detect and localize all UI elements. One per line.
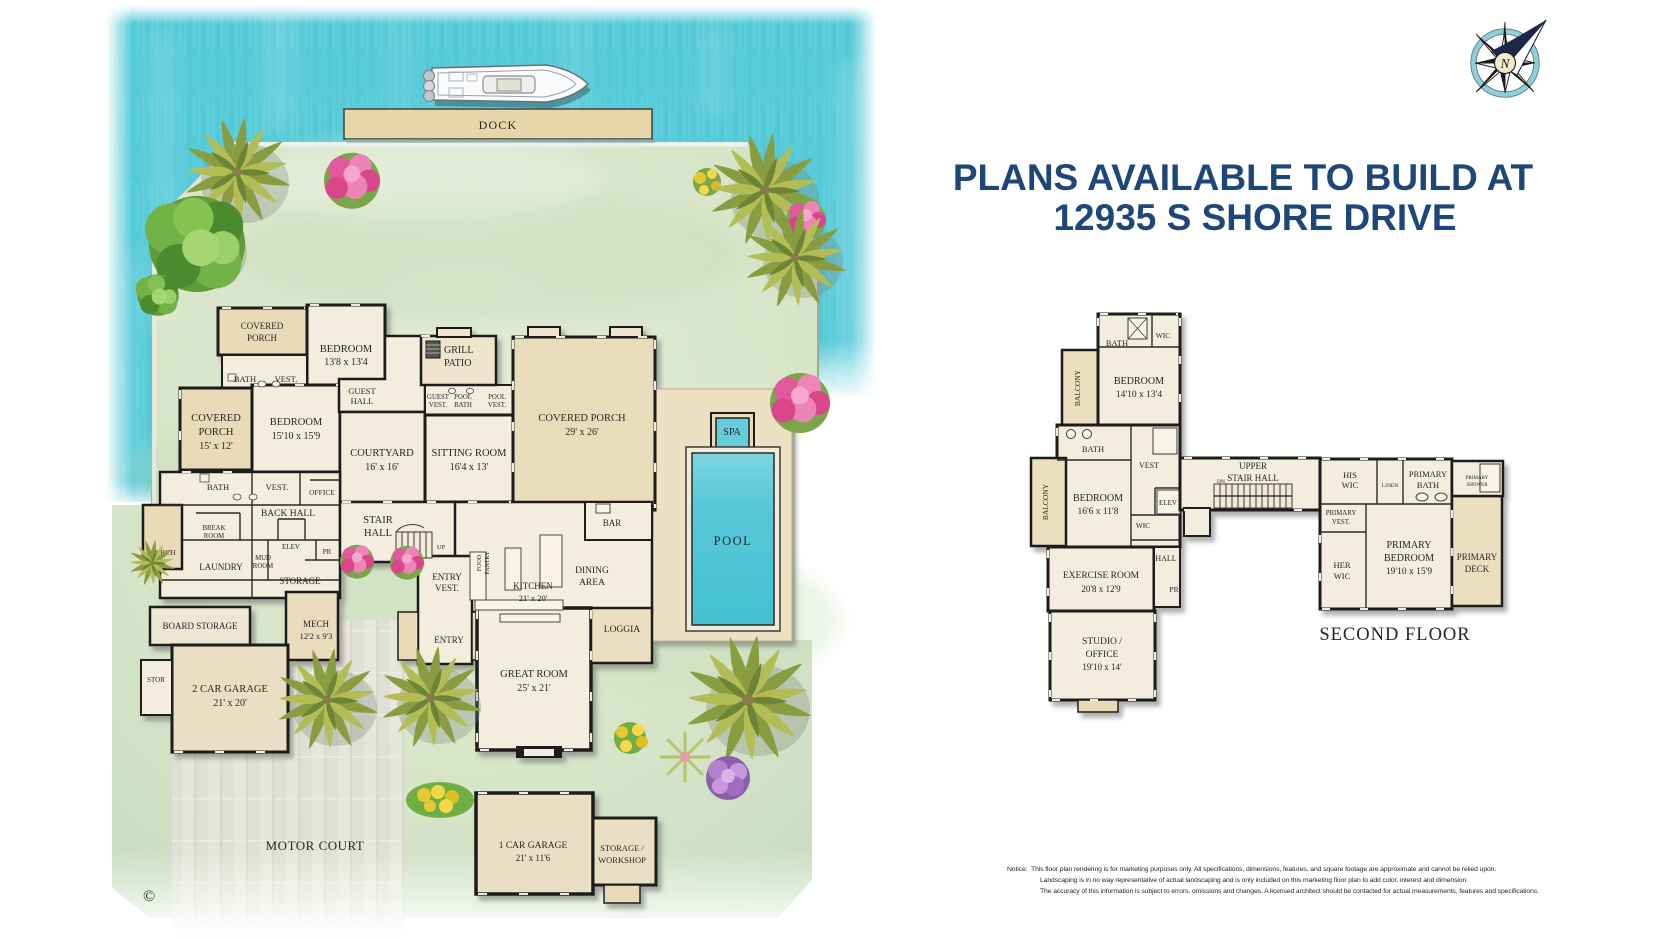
svg-text:GRILL: GRILL <box>444 345 473 356</box>
svg-text:2 CAR GARAGE: 2 CAR GARAGE <box>192 684 268 695</box>
svg-text:16'4 x 13': 16'4 x 13' <box>450 462 489 473</box>
svg-text:PORCH: PORCH <box>198 427 233 438</box>
svg-text:19'10 x 15'9: 19'10 x 15'9 <box>1386 567 1432 577</box>
svg-text:DOCK: DOCK <box>479 118 518 132</box>
svg-text:UPPER: UPPER <box>1239 461 1267 471</box>
svg-text:12935 S SHORE DRIVE: 12935 S SHORE DRIVE <box>1053 197 1456 238</box>
svg-text:BEDROOM: BEDROOM <box>1073 493 1123 504</box>
svg-text:MOTOR COURT: MOTOR COURT <box>266 838 365 853</box>
svg-text:ELEV: ELEV <box>1159 499 1177 507</box>
svg-text:UP: UP <box>437 544 446 551</box>
svg-text:DINING: DINING <box>575 566 609 576</box>
svg-text:STOR: STOR <box>147 676 165 684</box>
svg-text:VEST: VEST <box>1139 461 1159 470</box>
svg-text:VEST.: VEST. <box>1332 519 1350 526</box>
svg-text:WIC: WIC <box>1156 331 1171 340</box>
svg-text:PRIMARY: PRIMARY <box>1457 552 1498 562</box>
svg-text:KITCHEN: KITCHEN <box>513 581 553 591</box>
svg-text:BEDROOM: BEDROOM <box>320 344 373 355</box>
svg-text:HALL: HALL <box>364 528 392 539</box>
svg-text:BEDROOM: BEDROOM <box>270 417 323 428</box>
svg-text:DN: DN <box>1217 479 1225 485</box>
svg-text:BALCONY: BALCONY <box>1041 483 1050 520</box>
svg-text:21' x 11'6: 21' x 11'6 <box>516 853 551 863</box>
svg-text:FOOD: FOOD <box>477 554 483 571</box>
svg-text:BATH: BATH <box>234 374 256 384</box>
svg-text:PRIMARY: PRIMARY <box>1386 540 1431 551</box>
svg-text:BATH: BATH <box>454 402 472 409</box>
svg-text:BATH: BATH <box>207 482 229 492</box>
svg-text:HER: HER <box>1334 560 1351 570</box>
svg-text:MUD: MUD <box>255 555 271 562</box>
svg-text:VEST.: VEST. <box>435 583 459 593</box>
svg-text:BATH: BATH <box>1417 480 1439 490</box>
svg-text:BOARD STORAGE: BOARD STORAGE <box>162 621 238 631</box>
svg-text:WIC: WIC <box>1342 480 1359 490</box>
svg-text:BEDROOM: BEDROOM <box>1114 376 1164 387</box>
svg-text:PLANS AVAILABLE TO BUILD AT: PLANS AVAILABLE TO BUILD AT <box>953 157 1534 198</box>
svg-text:STAIR: STAIR <box>363 515 393 526</box>
svg-text:14'10 x 13'4: 14'10 x 13'4 <box>1116 390 1162 400</box>
svg-text:ENTRY: ENTRY <box>432 572 462 582</box>
svg-text:PRIMARY: PRIMARY <box>1326 510 1357 517</box>
svg-text:ROOM: ROOM <box>204 533 224 540</box>
svg-text:GUEST: GUEST <box>427 394 450 401</box>
svg-text:PRIMARY: PRIMARY <box>1466 476 1489 481</box>
svg-text:STAIR HALL: STAIR HALL <box>1227 473 1279 483</box>
svg-text:©: © <box>143 888 155 905</box>
svg-text:COURTYARD: COURTYARD <box>350 448 414 459</box>
svg-text:21' x 20': 21' x 20' <box>519 593 548 603</box>
svg-text:20'8 x 12'9: 20'8 x 12'9 <box>1081 584 1121 594</box>
svg-text:SHOWER: SHOWER <box>1466 483 1488 488</box>
svg-text:BREAK: BREAK <box>202 525 225 532</box>
svg-text:VEST.: VEST. <box>266 482 289 492</box>
svg-text:POOL: POOL <box>454 394 472 401</box>
svg-text:29' x 26': 29' x 26' <box>565 427 599 438</box>
svg-text:15' x 12': 15' x 12' <box>199 441 233 452</box>
svg-text:WIC: WIC <box>1136 521 1151 530</box>
svg-text:19'10 x 14': 19'10 x 14' <box>1082 662 1122 672</box>
svg-text:ENTRY: ENTRY <box>434 635 464 645</box>
svg-text:BALCONY: BALCONY <box>1073 369 1082 406</box>
svg-text:BAR: BAR <box>603 518 622 528</box>
svg-text:Landscaping is in no way repre: Landscaping is in no way representative … <box>1040 877 1468 884</box>
svg-text:Notice: This floor plan rende: Notice: This floor plan rendering is for… <box>1007 866 1496 873</box>
svg-text:BATH: BATH <box>1082 444 1104 454</box>
svg-text:MECH: MECH <box>303 619 330 629</box>
svg-text:HALL: HALL <box>1155 554 1176 563</box>
svg-text:WORKSHOP: WORKSHOP <box>598 855 646 865</box>
svg-text:BATH: BATH <box>1106 338 1128 348</box>
svg-text:VEST.: VEST. <box>275 374 298 384</box>
svg-text:HIS: HIS <box>1343 470 1357 480</box>
svg-text:COVERED: COVERED <box>241 321 284 331</box>
svg-text:N: N <box>1499 56 1510 71</box>
svg-text:LAUNDRY: LAUNDRY <box>199 562 243 572</box>
svg-text:PR: PR <box>323 548 332 556</box>
svg-text:VEST.: VEST. <box>488 402 506 409</box>
svg-text:The accuracy of this informati: The accuracy of this information is subj… <box>1040 888 1539 895</box>
svg-text:POOL: POOL <box>488 394 506 401</box>
svg-text:PR: PR <box>1169 585 1178 594</box>
svg-text:12'2 x 9'3: 12'2 x 9'3 <box>300 631 333 641</box>
svg-text:SITTING ROOM: SITTING ROOM <box>432 448 508 459</box>
svg-text:OFFICE: OFFICE <box>1086 650 1119 660</box>
svg-text:PANTRY: PANTRY <box>485 551 491 575</box>
svg-text:LINEN: LINEN <box>1382 483 1399 489</box>
svg-text:STORAGE: STORAGE <box>279 576 321 586</box>
svg-text:PORCH: PORCH <box>247 333 278 343</box>
svg-text:VEST.: VEST. <box>429 402 447 409</box>
svg-text:16' x 16': 16' x 16' <box>365 462 399 473</box>
svg-text:13'8 x 13'4: 13'8 x 13'4 <box>324 357 368 368</box>
svg-text:PRIMARY: PRIMARY <box>1409 469 1447 479</box>
svg-text:AREA: AREA <box>579 578 605 588</box>
svg-text:POOL: POOL <box>714 534 753 548</box>
svg-text:PATIO: PATIO <box>444 358 471 369</box>
svg-text:OFFICE: OFFICE <box>309 488 335 497</box>
svg-text:ROOM: ROOM <box>253 563 273 570</box>
svg-text:COVERED PORCH: COVERED PORCH <box>538 413 626 424</box>
svg-text:EXERCISE ROOM: EXERCISE ROOM <box>1063 571 1140 581</box>
svg-text:COVERED: COVERED <box>191 413 241 424</box>
svg-text:SPA: SPA <box>723 427 741 438</box>
svg-text:STUDIO /: STUDIO / <box>1082 637 1122 647</box>
svg-text:WIC: WIC <box>1334 571 1351 581</box>
svg-text:25' x 21': 25' x 21' <box>517 683 551 694</box>
svg-text:HALL: HALL <box>351 396 374 406</box>
svg-text:1 CAR GARAGE: 1 CAR GARAGE <box>499 841 568 851</box>
svg-text:DECK: DECK <box>1465 564 1490 574</box>
svg-text:GUEST: GUEST <box>348 386 376 396</box>
svg-text:GREAT ROOM: GREAT ROOM <box>500 669 568 680</box>
svg-text:BACK HALL: BACK HALL <box>261 509 315 519</box>
svg-text:LOGGIA: LOGGIA <box>604 625 641 635</box>
svg-text:ELEV: ELEV <box>282 543 300 551</box>
svg-text:BEDROOM: BEDROOM <box>1384 553 1434 564</box>
svg-text:16'6 x 11'8: 16'6 x 11'8 <box>1077 507 1118 517</box>
svg-text:15'10 x 15'9: 15'10 x 15'9 <box>272 431 321 442</box>
svg-text:SECOND FLOOR: SECOND FLOOR <box>1319 625 1470 645</box>
svg-text:STORAGE /: STORAGE / <box>600 843 644 853</box>
svg-text:21' x 20': 21' x 20' <box>213 698 247 709</box>
